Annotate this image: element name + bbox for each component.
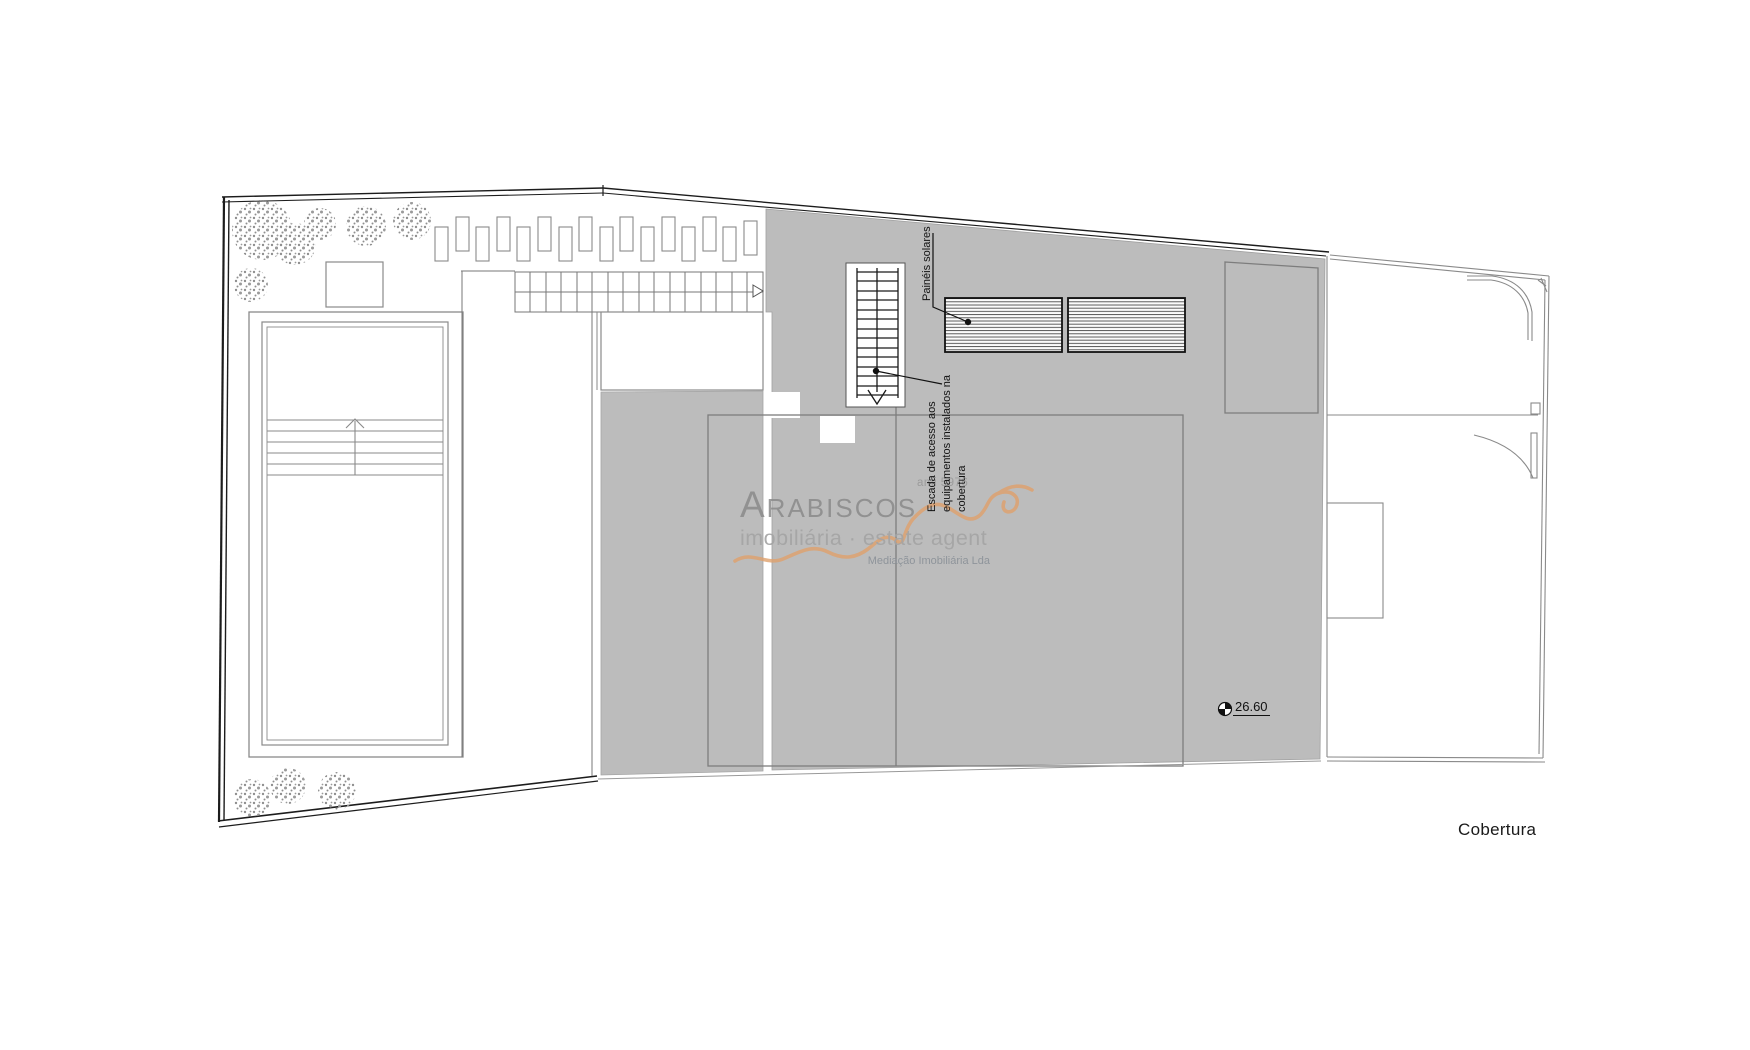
plan-title: Cobertura — [1458, 820, 1536, 840]
roof-plan-page: ami 5976 Painéis solares Escada de acess… — [0, 0, 1750, 1050]
roof-opening — [820, 416, 855, 443]
skylight-box — [597, 312, 763, 390]
tree-icon — [318, 772, 356, 810]
solar-panel — [945, 298, 1062, 352]
stair-access-label-line1: Escada de acesso aos — [925, 375, 940, 512]
door-swing — [1474, 433, 1537, 478]
roof-opening — [766, 392, 800, 418]
stair-ladder — [846, 263, 905, 407]
solar-panels-label: Painéis solares — [921, 226, 934, 301]
tree-icon — [270, 768, 306, 804]
stair-access-label: Escada de acesso aos equipamentos instal… — [925, 375, 970, 512]
tree-icon — [346, 206, 386, 246]
pool-steps — [267, 419, 443, 475]
pool — [249, 312, 463, 757]
level-value: 26.60 — [1233, 699, 1270, 716]
stair-access-label-line2: equipamentos instalados na — [940, 375, 955, 512]
terrace — [1327, 255, 1549, 762]
solar-panel — [1068, 298, 1185, 352]
tree-icon — [393, 202, 431, 240]
level-marker — [1219, 703, 1232, 716]
stair-access-label-line3: cobertura — [955, 375, 970, 512]
tree-icon — [304, 208, 336, 240]
floor-plan-drawing — [0, 0, 1750, 1050]
garden-structure — [326, 262, 383, 307]
tree-icon — [233, 779, 271, 817]
tree-icon — [234, 268, 268, 302]
roof-left-wing-slab — [601, 391, 763, 775]
pergola-slats — [435, 217, 757, 261]
